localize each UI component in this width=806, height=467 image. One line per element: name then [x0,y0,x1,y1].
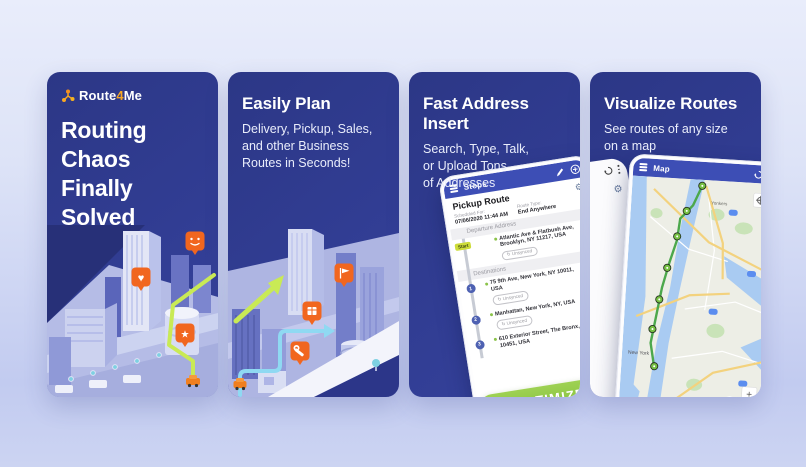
city-illustration: ♥ ★ [47,225,218,397]
zoom-in-button[interactable]: + [741,387,757,397]
svg-text:+: + [746,389,753,397]
start-badge: Start [454,241,471,250]
settings-gear-icon[interactable]: ⚙ [613,184,623,196]
smiley-marker-icon [186,232,205,256]
map-label-yonkers: Yonkers [711,200,728,206]
panel-subtitle: Delivery, Pickup, Sales, and other Busin… [242,121,387,172]
route-map[interactable]: Yonkers New York Brooklyn EAST NEW YORK [617,176,761,397]
unsynced-badge: ↻ Unsynced [501,246,538,261]
main-headline: Routing Chaos Finally Solved [61,116,206,232]
stop-number: 2 [471,315,481,325]
route4me-logo-icon [61,89,75,103]
screenshot-panel-easily-plan[interactable]: Easily Plan Delivery, Pickup, Sales, and… [228,72,399,397]
app-store-screenshot-gallery: ♥ ★ Route4Me Routing [0,0,806,467]
map-screen-title: Map [653,163,670,173]
svg-text:★: ★ [181,330,190,341]
hamburger-menu-icon[interactable] [639,163,647,171]
svg-text:♥: ♥ [138,273,145,285]
map-label-new-york: New York [628,350,650,357]
locate-button[interactable] [753,193,761,208]
route4me-logo: Route4Me [61,88,206,103]
city-illustration-plan [228,225,399,397]
panel-heading: Visualize Routes [604,94,749,114]
sync-icon[interactable] [754,169,761,179]
map-screen-phone: Map [612,153,761,397]
brand-name: Route4Me [79,88,142,103]
screenshot-panel-fast-address-insert[interactable]: Fast Address Insert Search, Type, Talk, … [409,72,580,397]
overflow-menu-icon[interactable] [618,165,621,173]
screenshot-panel-visualize-routes[interactable]: Visualize Routes See routes of any size … [590,72,761,397]
settings-gear-icon[interactable]: ⚙ [574,182,580,192]
screenshot-panel-routing-chaos[interactable]: ♥ ★ Route4Me Routing [47,72,218,397]
stop-number: 1 [466,284,476,294]
panel-heading: Fast Address Insert [423,94,568,134]
optimize-button[interactable]: OPTIMIZE [478,374,580,397]
panel-subtitle: Search, Type, Talk, or Upload Tons of Ad… [423,141,568,192]
stop-number: 3 [474,340,484,350]
sync-icon[interactable] [604,166,614,176]
panel-heading: Easily Plan [242,94,387,114]
add-stop-icon[interactable] [570,164,580,175]
panel-subtitle: See routes of any size on a map [604,121,749,155]
